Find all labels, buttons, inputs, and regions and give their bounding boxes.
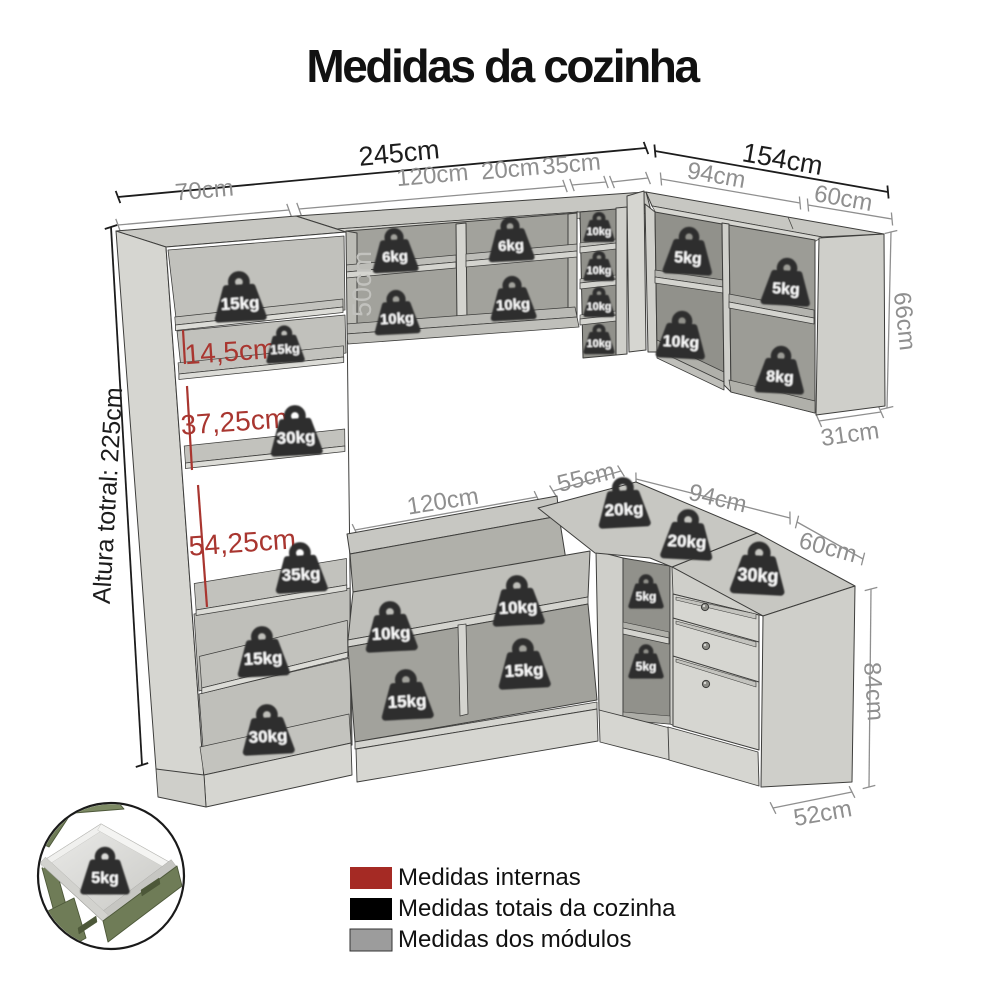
svg-text:84cm: 84cm [858,661,889,721]
svg-text:15kg: 15kg [220,293,260,314]
svg-text:5kg: 5kg [636,659,657,673]
svg-text:30kg: 30kg [276,427,316,448]
svg-text:Medidas dos módulos: Medidas dos módulos [398,926,631,953]
svg-text:10kg: 10kg [496,296,531,315]
svg-text:10kg: 10kg [586,265,611,277]
svg-text:5kg: 5kg [772,280,800,298]
svg-text:15kg: 15kg [504,660,544,681]
svg-text:10kg: 10kg [586,338,611,350]
svg-text:70cm: 70cm [174,175,235,207]
svg-text:20cm: 20cm [480,154,541,186]
svg-text:15kg: 15kg [387,691,427,712]
svg-text:15kg: 15kg [270,341,300,358]
svg-text:10kg: 10kg [498,597,538,618]
svg-text:15kg: 15kg [243,648,283,669]
svg-text:10kg: 10kg [586,301,611,313]
svg-text:35cm: 35cm [541,149,602,181]
svg-text:6kg: 6kg [498,237,525,255]
svg-text:Medidas totais da cozinha: Medidas totais da cozinha [398,895,676,922]
svg-text:30kg: 30kg [248,726,288,747]
svg-text:10kg: 10kg [380,310,415,329]
svg-text:14,5cm: 14,5cm [183,333,277,370]
svg-text:10kg: 10kg [371,623,411,644]
svg-text:5kg: 5kg [636,589,657,603]
svg-text:50cm: 50cm [347,251,377,317]
svg-text:5kg: 5kg [91,870,119,887]
svg-text:Medidas da cozinha: Medidas da cozinha [306,40,700,92]
svg-text:30kg: 30kg [737,564,779,586]
svg-text:5kg: 5kg [674,249,702,267]
svg-text:8kg: 8kg [766,368,794,386]
svg-text:10kg: 10kg [586,226,611,238]
svg-text:6kg: 6kg [382,248,409,266]
svg-text:Medidas internas: Medidas internas [398,864,581,891]
svg-text:10kg: 10kg [662,333,699,352]
svg-text:20kg: 20kg [604,499,644,520]
svg-text:35kg: 35kg [281,564,321,585]
svg-text:20kg: 20kg [667,531,707,552]
